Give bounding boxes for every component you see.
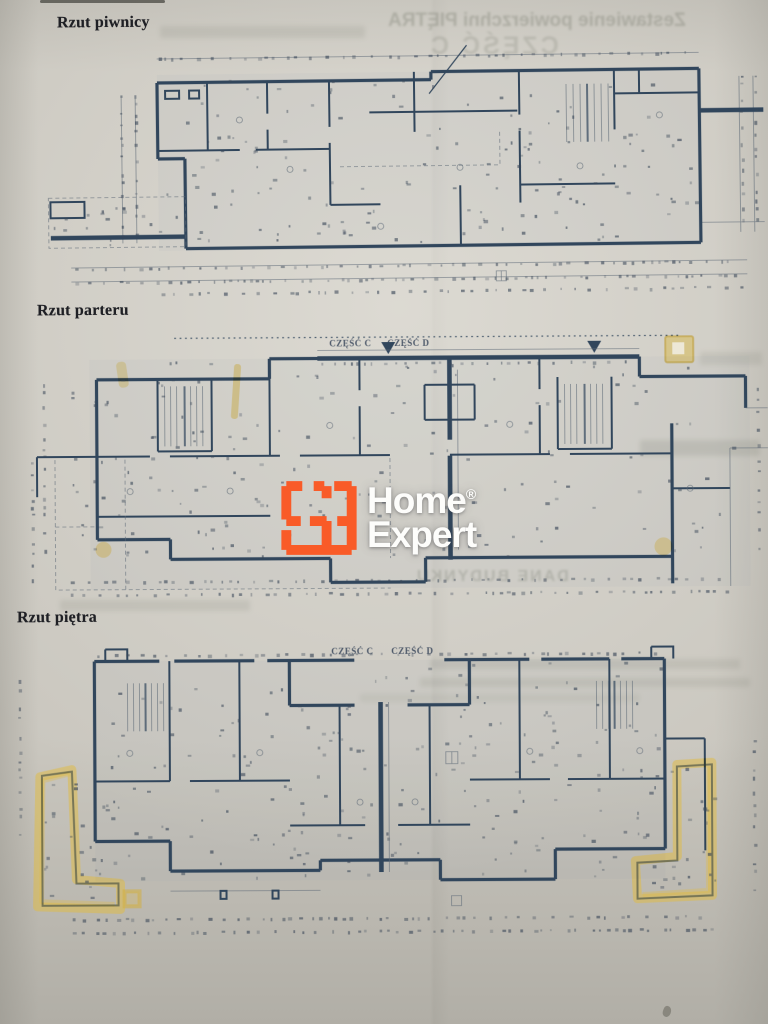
homeexpert-watermark-logo: Home® Expert	[281, 477, 476, 556]
scanned-floor-plan-page: Zestawienie powierzchni PIĘTRA CZĘŚĆ C D…	[0, 0, 768, 1024]
bleedthrough-text-top: Zestawienie powierzchni PIĘTRA	[388, 10, 686, 32]
ink-smudge	[661, 1005, 672, 1018]
registered-trademark-symbol: ®	[466, 486, 476, 502]
ground-floor-plan-drawing: CZĘŚĆ C CZĘŚĆ D	[29, 328, 768, 607]
homeexpert-floorplan-icon	[281, 480, 357, 556]
logo-line2: Expert	[367, 518, 476, 552]
homeexpert-logo-text: Home® Expert	[367, 477, 476, 552]
ground-plan-title: Rzut parteru	[37, 302, 129, 321]
basement-floor-plan-drawing	[38, 32, 765, 303]
first-floor-plan-title: Rzut piętra	[17, 609, 97, 628]
drawing-symbol	[496, 271, 506, 281]
scan-edge-artifact	[40, 0, 165, 3]
plan-shading	[157, 68, 701, 251]
first-floor-plan-drawing: CZĘŚĆ C CZĘŚĆ D	[9, 640, 768, 944]
section-label-part-c: CZĘŚĆ C	[329, 338, 371, 348]
basement-plan-title: Rzut piwnicy	[57, 14, 150, 33]
